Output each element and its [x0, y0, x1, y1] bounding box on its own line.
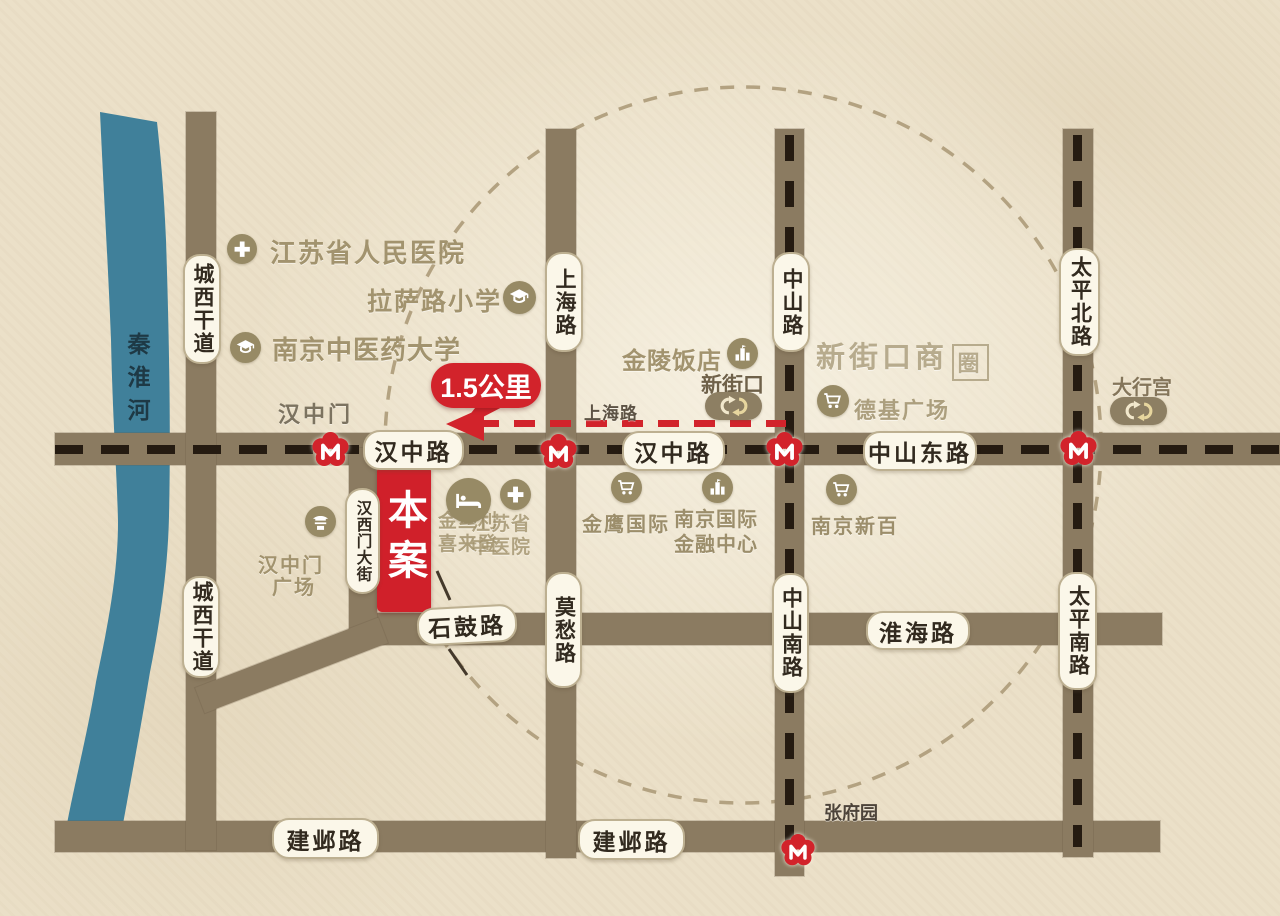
pagoda-icon	[305, 506, 336, 537]
poi-label-hanzhongmen-square: 汉中门 广场	[258, 555, 324, 599]
road-pill-hanzhong-west: 汉中路	[363, 430, 464, 470]
station-label-zhangfuyuan: 张府园	[824, 799, 878, 825]
poi-label-lasa-school: 拉萨路小学	[367, 282, 502, 318]
poi-label-deji-plaza: 德基广场	[854, 393, 950, 425]
interchange-arrows-icon	[705, 392, 762, 420]
road-pill-hanzhong-east: 汉中路	[622, 431, 725, 471]
metro-station-icon	[312, 432, 349, 469]
poi-label-renmin-hospital: 江苏省人民医院	[270, 233, 466, 270]
road-shanghai-mochou	[546, 129, 576, 858]
station-label-hanzhongmen: 汉中门	[278, 397, 353, 429]
metro-station-icon	[766, 432, 803, 469]
metro-station-icon	[540, 434, 577, 471]
station-label-daxinggong: 大行宫	[1112, 371, 1172, 400]
location-map: 秦淮河 汉中路 汉中路 中山东路 石鼓路 淮海路 建邺路 建邺路 城西干道 城西…	[0, 0, 1280, 916]
road-pill-huaihai: 淮海路	[866, 611, 970, 650]
interchange-arrows-icon	[1110, 397, 1167, 425]
road-pill-taiping-south: 太平南路	[1058, 572, 1097, 690]
metro-line-dashes-taiping	[1073, 135, 1082, 847]
street-label-shanghai-small: 上海路	[584, 399, 638, 424]
road-pill-chengxi-north: 城西干道	[183, 254, 221, 364]
road-pill-jianye-west: 建邺路	[272, 818, 379, 859]
hospital-cross-icon	[500, 479, 531, 510]
hospital-cross-icon	[227, 234, 257, 264]
road-pill-jianye-east: 建邺路	[578, 819, 685, 860]
road-pill-shigu: 石鼓路	[416, 603, 518, 646]
road-pill-shanghai: 上海路	[545, 252, 583, 352]
shopping-cart-icon	[826, 474, 857, 505]
shopping-cart-icon	[817, 385, 849, 417]
metro-station-icon	[781, 834, 815, 868]
road-pill-zhongshan: 中山路	[772, 252, 810, 352]
distance-bubble: 1.5公里	[431, 363, 541, 408]
metro-station-icon	[1060, 431, 1097, 468]
road-pill-mochou: 莫愁路	[545, 572, 582, 688]
project-marker: 本案	[377, 466, 431, 612]
poi-label-jiangsu-tcm-hospital: 江苏省 中医院	[471, 513, 531, 559]
metro-line-dashes-zhongshan	[785, 135, 794, 863]
school-cap-icon	[230, 332, 261, 363]
building-icon	[727, 338, 758, 369]
road-pill-chengxi-south: 城西干道	[182, 576, 220, 678]
leader-tick-2	[449, 649, 467, 675]
poi-label-jinying: 金鹰国际	[582, 508, 670, 537]
school-cap-icon	[503, 281, 536, 314]
poi-label-njifc: 南京国际 金融中心	[674, 508, 758, 558]
shopping-cart-icon	[611, 472, 642, 503]
road-pill-taiping-north: 太平北路	[1059, 248, 1100, 356]
leader-tick-1	[437, 571, 450, 600]
poi-label-xinbai: 南京新百	[811, 510, 899, 539]
seal-icon: 圈	[952, 344, 989, 381]
river-name-label: 秦淮河	[120, 332, 154, 431]
road-pill-hanximen-dajie: 汉西门大街	[345, 488, 380, 594]
road-pill-zhongshandong: 中山东路	[863, 431, 977, 471]
river-shape	[63, 112, 170, 846]
hotel-bed-icon	[446, 478, 491, 523]
poi-label-zhongyiyao-univ: 南京中医药大学	[272, 330, 461, 367]
road-diagonal-connector	[195, 618, 388, 713]
building-icon	[702, 472, 733, 503]
poi-label-business-circle: 新街口商圈	[816, 334, 989, 381]
road-chengxi-gandao	[186, 112, 216, 850]
road-pill-zhongshan-south: 中山南路	[772, 573, 809, 693]
